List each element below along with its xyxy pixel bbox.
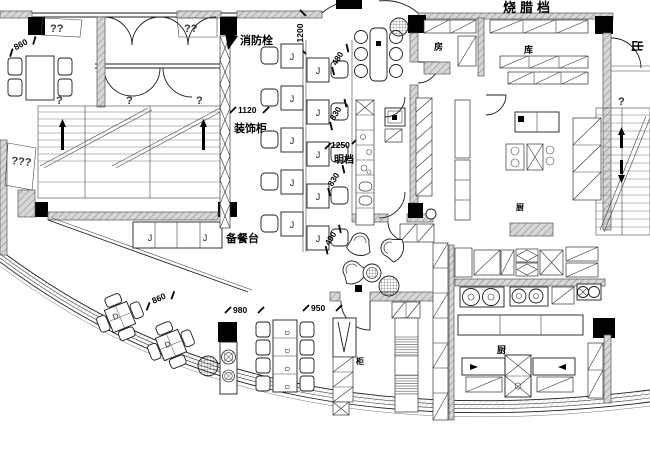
dim-860-topleft: 860 [5,32,38,57]
left-dining-nook [8,56,72,100]
entrance-door [322,0,418,13]
page-title: 烧腊档 [503,0,554,15]
svg-text:1120: 1120 [238,105,257,115]
bottom-counter-strip [392,302,420,412]
plant [198,356,218,376]
stair-direction-arrows [59,119,207,150]
placeholder-text: ?? [184,23,198,35]
entrance-column [336,0,362,9]
seat-letter: J [290,178,295,188]
left-edge: ??? [0,140,36,255]
placeholder-text: ? [618,96,625,108]
dim-950: 950 [303,303,342,313]
kitchen-bottom-label: 厨 [497,345,506,355]
cooking-line [455,247,605,335]
tall-cabinet-column [433,243,448,420]
seat-letter: J [316,192,321,202]
wall-left-corridor [97,17,105,107]
kitchen-island [462,343,603,398]
hood-and-cabinets [400,223,553,242]
svg-text:860: 860 [12,36,29,52]
svg-text:830: 830 [325,171,341,189]
seat-letter: J [290,220,295,230]
svg-text:950: 950 [311,303,325,313]
seat-letter: J [148,233,153,243]
entry-table-group [355,18,409,81]
seat-letter: J [316,150,321,160]
room-mid-label: 库 [524,44,533,55]
cabinet-label: 柜 [355,356,364,366]
dim-1250: 1250 [325,138,358,150]
plant [367,268,378,279]
placeholder-text: ? [126,95,133,107]
seat-letter: J [290,136,295,146]
seat-letter: J [290,52,295,62]
seat-letter: D [283,331,289,336]
svg-text:1250: 1250 [331,140,350,150]
open-counter-label: 明档 [334,153,354,166]
seat-letter: J [316,234,321,244]
v-cabinet-strip [333,318,356,415]
seat-letter: D [283,385,289,390]
dim-860: 860 [142,287,177,310]
seat-letter: J [316,66,321,76]
open-kitchen-line [356,97,436,225]
kitchen-center [455,100,559,220]
seat-letter: J [290,94,295,104]
long-table: D D D D [256,320,314,392]
exit-label: 出 [630,40,645,52]
seat-letter: J [316,108,321,118]
seat-letter: D [283,349,289,354]
fire-hydrant-label: 消防栓 [240,33,273,47]
kitchen-mid-label: 厨 [516,202,524,212]
interior-doors [95,17,230,107]
right-mid-cabinets [573,118,601,200]
floor-plan: ?? ?? 860 ? ? ? [0,0,650,457]
stairwell: ? ? ? [38,95,225,198]
svg-text:1200: 1200 [295,23,305,42]
plant [379,276,399,296]
room-mid-group [486,20,588,115]
svg-text:860: 860 [150,291,167,306]
room-door-arc [486,95,506,115]
placeholder-text: ?? [50,23,64,35]
room-left-label: 房 [434,41,443,52]
plant [390,18,408,36]
placeholder-text: ??? [11,155,33,169]
prep-counter-label: 备餐台 [225,231,259,245]
seat-letter: J [203,233,208,243]
floor-plan-drawing: ?? ?? 860 ? ? ? [0,0,650,457]
svg-text:980: 980 [233,305,247,315]
dim-980: 980 [225,305,264,315]
seat-letter: D [283,367,289,372]
room-left-group [424,20,476,74]
dim-1120: 1120 [230,105,269,115]
placeholder-text: ? [196,95,203,107]
placeholder-text: ? [56,95,63,107]
